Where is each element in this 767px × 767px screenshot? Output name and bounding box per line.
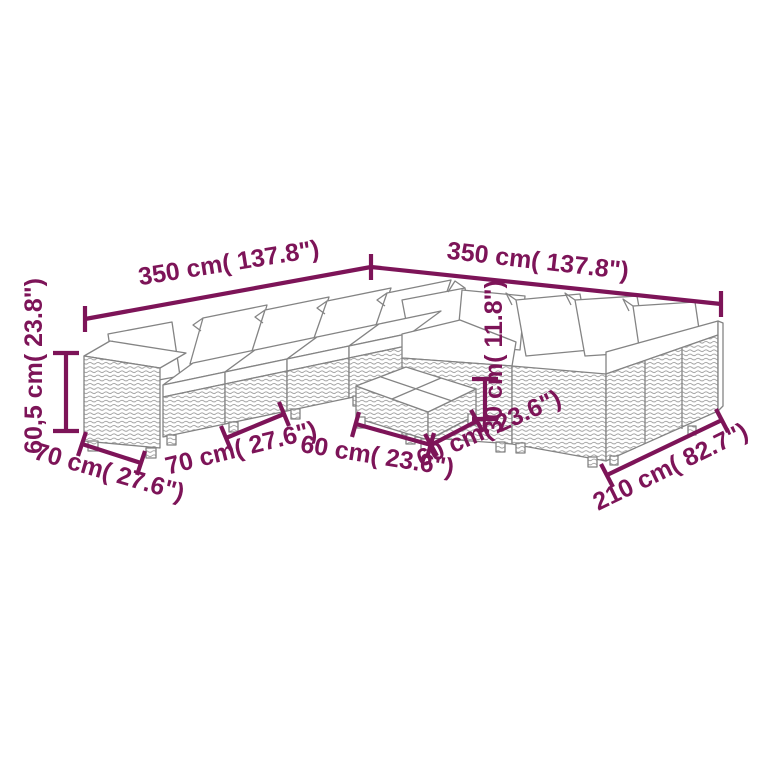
dimension-diagram: 350 cm( 137.8") 350 cm( 137.8") 60,5 cm(… xyxy=(0,0,767,767)
dimension-label: 60,5 cm( 23.8") xyxy=(20,278,48,454)
dimension-label: 30 cm( 11.8") xyxy=(480,280,508,434)
diagram-canvas: 350 cm( 137.8") 350 cm( 137.8") 60,5 cm(… xyxy=(0,0,767,767)
dimension-label: 70 cm( 27.6") xyxy=(31,437,188,507)
dimension-60-5-height: 60,5 cm( 23.8") xyxy=(20,278,79,454)
